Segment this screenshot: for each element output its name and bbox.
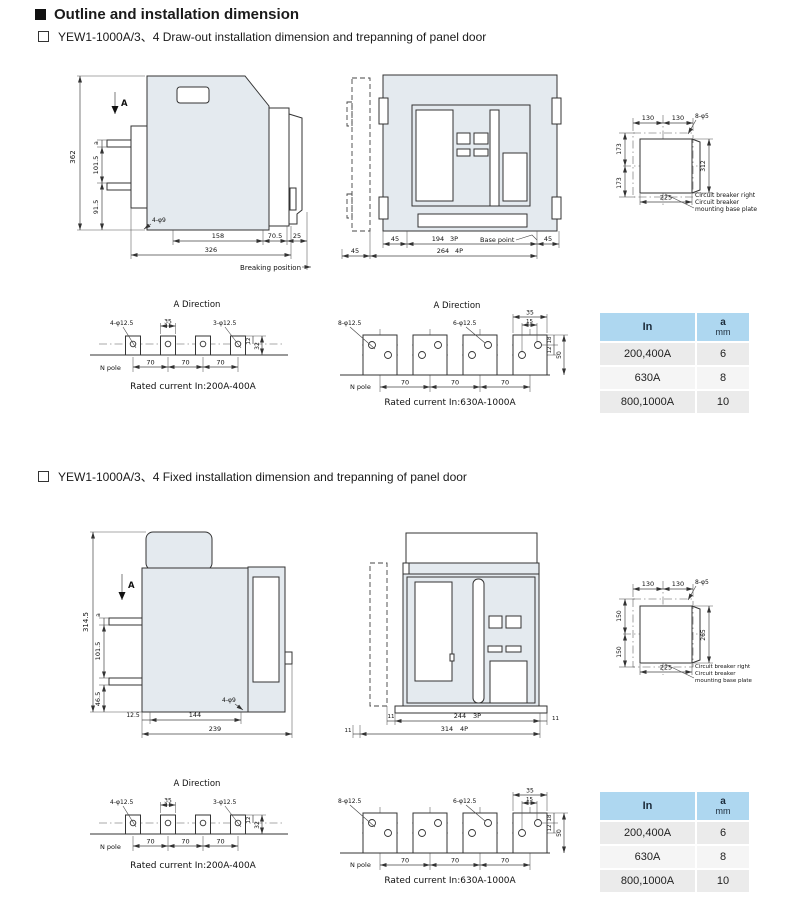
- dim-12: 12: [547, 347, 553, 354]
- rated-current-caption: Rated current In:200A-400A: [130, 382, 256, 392]
- drawout-section-heading: YEW1-1000A/3、4 Draw-out installation dim…: [58, 28, 486, 45]
- dim-pitch: 70: [451, 857, 459, 865]
- a-direction-title: A Direction: [174, 779, 221, 789]
- fourth-pole-tab: [347, 102, 352, 126]
- terminal-pads: [363, 813, 547, 853]
- dim-left2: 173: [616, 177, 623, 189]
- dim-pitch: 70: [401, 379, 409, 387]
- dim-lower: 46.5: [94, 692, 102, 706]
- pushbutton: [489, 616, 502, 628]
- rated-current-caption: Rated current In:200A-400A: [130, 861, 256, 871]
- fixed-section-heading-row: YEW1-1000A/3、4 Fixed installation dimens…: [38, 468, 467, 485]
- lower-terminal: [109, 678, 142, 685]
- col-header-a: amm: [697, 313, 749, 341]
- holes-right-label: 3-φ12.5: [213, 799, 236, 806]
- dim-lower: 91.5: [92, 200, 100, 214]
- col-header-a: amm: [697, 792, 749, 820]
- fixed-front-view-drawing: 11 244 3P 11 11 314 4P: [335, 518, 590, 753]
- cutout-note-1: Circuit breaker right: [695, 664, 751, 670]
- dim-w3: 25: [293, 232, 301, 240]
- cutout-holes-leader: [688, 586, 696, 600]
- cutout-holes-label: 8-φ5: [695, 113, 709, 120]
- handle-slot: [490, 110, 499, 206]
- dim-terminal-a: a: [93, 141, 100, 145]
- dim-total-width: 239: [209, 725, 221, 733]
- holes-left-label: 8-φ12.5: [338, 798, 361, 805]
- a-direction-title: A Direction: [174, 300, 221, 310]
- breaking-position-label: Breaking position: [240, 264, 301, 272]
- current-spec-table: In amm 200,400A 6 630A 8 800,1000A 10: [598, 311, 751, 415]
- dim-top2: 130: [672, 114, 684, 122]
- dim-35: 35: [526, 310, 534, 317]
- dim-w1: 158: [212, 232, 224, 240]
- drawout-section-heading-row: YEW1-1000A/3、4 Draw-out installation dim…: [38, 28, 486, 45]
- dim-bottom45: 45: [351, 247, 359, 255]
- dim-pitch: 70: [451, 379, 459, 387]
- rail-notch: [290, 188, 296, 210]
- indicator: [488, 646, 502, 652]
- lower-terminal: [107, 183, 131, 190]
- dim-pitch: 70: [146, 359, 154, 367]
- dim-left11: 11: [388, 714, 395, 720]
- mounting-ear: [379, 197, 388, 219]
- cutout-note-2: Circuit breaker: [695, 671, 736, 677]
- dim-35: 35: [164, 319, 172, 326]
- dim-3p-width: 194: [432, 235, 444, 243]
- mounting-ear: [379, 98, 388, 124]
- dim-left45: 45: [391, 235, 399, 243]
- holes-left-label: 4-φ12.5: [110, 799, 133, 806]
- mounting-base-plate: [640, 139, 692, 193]
- dim-pitch: 70: [501, 379, 509, 387]
- table-row: 630A 8: [600, 367, 749, 389]
- dim-18: 18: [547, 814, 553, 821]
- dim-b1: 12.5: [126, 712, 140, 719]
- dim-top1: 130: [642, 114, 654, 122]
- indicator: [474, 149, 488, 156]
- rated-current-caption: Rated current In:630A-1000A: [384, 398, 516, 408]
- terminal-plate: [131, 126, 147, 208]
- dim-b2: 144: [189, 711, 201, 719]
- handle-slot: [473, 579, 484, 703]
- dim-right11: 11: [552, 716, 559, 722]
- drawout-front-view-drawing: 45 194 3P 45 Base point 45 264 4P: [335, 66, 585, 276]
- indicator: [506, 646, 521, 652]
- dim-pitch: 70: [216, 838, 224, 846]
- dim-pitch: 70: [401, 857, 409, 865]
- open-square-bullet-icon: [38, 471, 49, 482]
- pushbutton: [474, 133, 488, 144]
- dim-bottom11: 11: [345, 728, 352, 734]
- table-row: 800,1000A 10: [600, 391, 749, 413]
- dim-pitch: 70: [501, 857, 509, 865]
- base-point-label: Base point: [480, 236, 515, 244]
- dim-32: 32: [254, 342, 261, 350]
- dim-right45: 45: [544, 235, 552, 243]
- base-point-leader: [516, 235, 537, 240]
- dim-total-height: 314.5: [82, 612, 90, 632]
- drawout-panel-cutout-drawing: 130 130 8-φ5 173 173 312 225 Circuit bre…: [605, 95, 800, 230]
- mounting-ear: [552, 98, 561, 124]
- fixed-panel-cutout-drawing: 130 130 8-φ5 150 150 265 225 Circuit bre…: [605, 563, 800, 703]
- label-3p: 3P: [473, 712, 481, 720]
- upper-terminal: [107, 140, 131, 147]
- controller-window: [503, 153, 527, 201]
- front-panel: [253, 577, 279, 682]
- dim-upper: 101.5: [94, 642, 102, 661]
- breaker-body: [142, 568, 248, 712]
- dimension-lines: [97, 140, 107, 230]
- door-handle: [450, 654, 454, 661]
- door-panel: [415, 582, 452, 681]
- pushbutton: [457, 133, 470, 144]
- terminal-pads: [126, 336, 246, 355]
- n-pole-label: N pole: [350, 383, 371, 391]
- fixed-a-direction-small-drawing: A Direction 4-φ12.5 3-φ12.5: [85, 772, 320, 882]
- fixed-a-direction-large-drawing: 8-φ12.5 6-φ12.5 35 15 18 12: [335, 770, 585, 895]
- dim-top1: 130: [642, 580, 654, 588]
- current-spec-table: In amm 200,400A 6 630A 8 800,1000A 10: [598, 790, 751, 894]
- dim-32: 32: [254, 821, 261, 829]
- table-row: 800,1000A 10: [600, 870, 749, 892]
- drawout-a-direction-small-drawing: A Direction 4-φ12.5 3-φ12.5: [85, 293, 320, 403]
- dim-terminal-a: a: [95, 613, 102, 617]
- drawout-side-view-drawing: A a 101.5 91.5 362 4-φ9 158 70.5: [55, 62, 325, 287]
- cutout-holes-label: 8-φ5: [695, 579, 709, 586]
- dim-4p-width: 314: [441, 725, 453, 733]
- dim-12: 12: [246, 338, 252, 345]
- terminal-pads: [126, 815, 246, 834]
- dim-pitch: 70: [181, 838, 189, 846]
- holes-mid-label: 6-φ12.5: [453, 320, 476, 327]
- rated-current-caption: Rated current In:630A-1000A: [384, 876, 516, 886]
- controller-window: [490, 661, 527, 703]
- mounting-ear: [552, 197, 561, 219]
- mounting-holes-label: 4-φ9: [222, 697, 236, 704]
- page-title: Outline and installation dimension: [54, 6, 299, 23]
- dim-4p-width: 264: [437, 247, 449, 255]
- cutout-holes-leader: [688, 120, 696, 134]
- arc-chamber: [406, 533, 537, 563]
- n-pole-label: N pole: [100, 843, 121, 851]
- holes-left-label: 4-φ12.5: [110, 320, 133, 327]
- fourth-pole-tab: [347, 194, 352, 218]
- open-square-bullet-icon: [38, 31, 49, 42]
- nameplate: [418, 214, 527, 227]
- view-a-label: A: [128, 581, 135, 591]
- col-header-in: In: [600, 313, 695, 341]
- dim-upper: 101.5: [92, 156, 100, 175]
- page-title-row: Outline and installation dimension: [35, 6, 299, 23]
- table-row: 630A 8: [600, 846, 749, 868]
- holes-left-label: 8-φ12.5: [338, 320, 361, 327]
- cutout-note-3: mounting base plate: [695, 206, 757, 213]
- label-3p: 3P: [450, 235, 458, 243]
- label-4p: 4P: [460, 725, 468, 733]
- cutout-note-1: Circuit breaker right: [695, 192, 756, 199]
- a-direction-title: A Direction: [434, 301, 481, 311]
- band-end-cap: [403, 563, 409, 574]
- dim-12: 12: [547, 825, 553, 832]
- holes-right-label: 3-φ12.5: [213, 320, 236, 327]
- fixed-section-heading: YEW1-1000A/3、4 Fixed installation dimens…: [58, 468, 467, 485]
- escutcheon: [416, 110, 453, 201]
- dim-top2: 130: [672, 580, 684, 588]
- dim-w2: 70.5: [268, 232, 282, 240]
- pushbutton: [506, 616, 521, 628]
- table-row: 200,400A 6: [600, 822, 749, 844]
- label-4p: 4P: [455, 247, 463, 255]
- dim-left1: 150: [616, 610, 623, 622]
- table-row: 200,400A 6: [600, 343, 749, 365]
- cutout-note-2: Circuit breaker: [695, 199, 740, 206]
- n-pole-label: N pole: [100, 364, 121, 372]
- lifting-handle-slot: [177, 87, 209, 103]
- indicator: [457, 149, 470, 156]
- dim-right: 312: [700, 160, 707, 172]
- cutout-note-3: mounting base plate: [695, 678, 753, 684]
- upper-terminal: [109, 618, 142, 625]
- n-pole-label: N pole: [350, 861, 371, 869]
- arc-chute-cover: [146, 532, 212, 570]
- dim-18: 18: [547, 336, 553, 343]
- mounting-holes-label: 4-φ9: [152, 217, 166, 224]
- dim-3p-width: 244: [454, 712, 466, 720]
- dim-50: 50: [556, 351, 563, 359]
- col-header-in: In: [600, 792, 695, 820]
- drawout-a-direction-large-drawing: A Direction: [335, 292, 585, 417]
- dim-pitch: 70: [216, 359, 224, 367]
- cradle-rail: [269, 108, 289, 226]
- dim-left1: 173: [616, 143, 623, 155]
- base-plate: [395, 706, 547, 713]
- frame-notch: [285, 652, 292, 664]
- dim-15: 15: [526, 319, 533, 325]
- mounting-base-plate: [640, 606, 692, 663]
- catalog-page: Outline and installation dimension YEW1-…: [0, 0, 800, 905]
- top-band: [403, 563, 539, 574]
- filled-square-bullet-icon: [35, 9, 46, 20]
- dim-total-width: 326: [205, 246, 217, 254]
- fourth-pole-dashed: [352, 78, 370, 231]
- dim-35: 35: [164, 798, 172, 805]
- dim-50: 50: [556, 829, 563, 837]
- view-a-label: A: [121, 99, 128, 109]
- terminal-pads: [363, 335, 547, 375]
- fourth-pole-dashed: [370, 563, 387, 706]
- fixed-side-view-drawing: A a 101.5 46.5 314.5 4-φ9 12.5 144 239: [55, 512, 325, 757]
- dim-total-height: 362: [69, 150, 77, 163]
- dim-right: 265: [700, 629, 707, 641]
- dim-15: 15: [526, 797, 533, 803]
- holes-mid-label: 6-φ12.5: [453, 798, 476, 805]
- dim-12: 12: [246, 817, 252, 824]
- dim-left2: 150: [616, 646, 623, 658]
- dim-pitch: 70: [181, 359, 189, 367]
- dim-35: 35: [526, 788, 534, 795]
- dim-pitch: 70: [146, 838, 154, 846]
